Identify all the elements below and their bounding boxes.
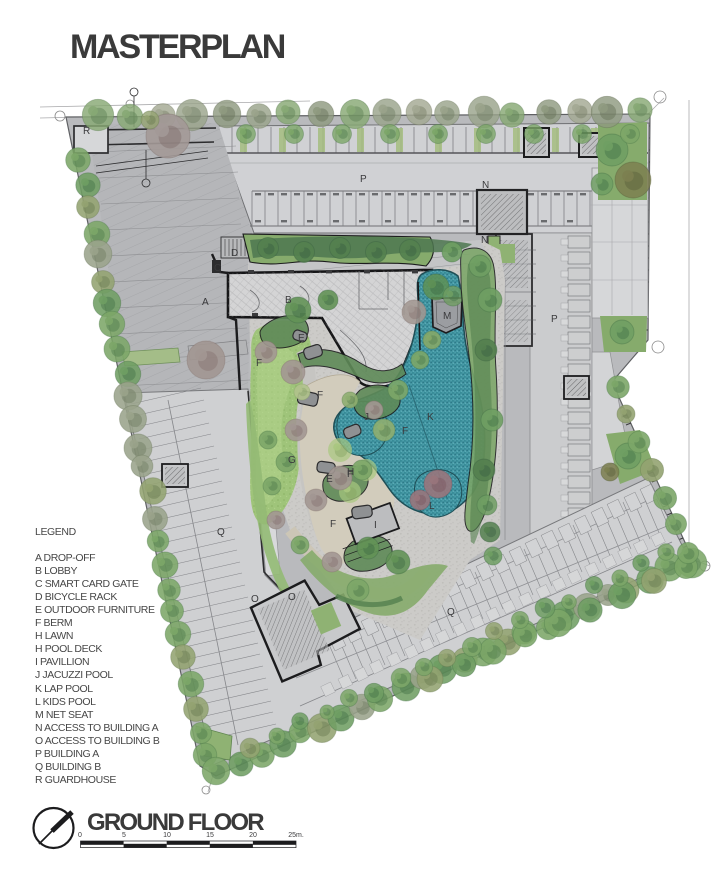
svg-text:F: F xyxy=(317,390,323,401)
svg-text:F: F xyxy=(402,426,408,437)
svg-text:A: A xyxy=(202,297,209,308)
svg-text:5: 5 xyxy=(122,832,126,839)
svg-text:20: 20 xyxy=(249,832,257,839)
svg-text:R: R xyxy=(83,126,90,137)
svg-text:F: F xyxy=(256,358,262,369)
svg-text:0: 0 xyxy=(78,832,82,839)
svg-text:C: C xyxy=(214,263,221,274)
svg-text:O: O xyxy=(251,594,259,605)
svg-text:N: N xyxy=(481,235,488,246)
svg-text:25m.: 25m. xyxy=(288,832,304,839)
svg-text:E: E xyxy=(326,474,333,485)
svg-text:10: 10 xyxy=(163,832,171,839)
svg-text:15: 15 xyxy=(206,832,214,839)
svg-text:Q: Q xyxy=(217,527,225,538)
svg-text:F: F xyxy=(330,519,336,530)
svg-text:G: G xyxy=(288,455,296,466)
svg-text:I: I xyxy=(374,520,377,531)
svg-text:E: E xyxy=(298,333,305,344)
svg-text:K: K xyxy=(427,412,434,423)
svg-text:P: P xyxy=(360,174,367,185)
svg-text:D: D xyxy=(231,248,238,259)
svg-text:F: F xyxy=(347,469,353,480)
svg-text:N: N xyxy=(482,180,489,191)
svg-text:O: O xyxy=(288,592,296,603)
svg-text:P: P xyxy=(551,314,558,325)
svg-text:L: L xyxy=(429,501,435,512)
svg-text:Q: Q xyxy=(447,607,455,618)
svg-text:J: J xyxy=(364,412,369,423)
svg-text:M: M xyxy=(443,311,451,322)
svg-text:B: B xyxy=(285,295,292,306)
